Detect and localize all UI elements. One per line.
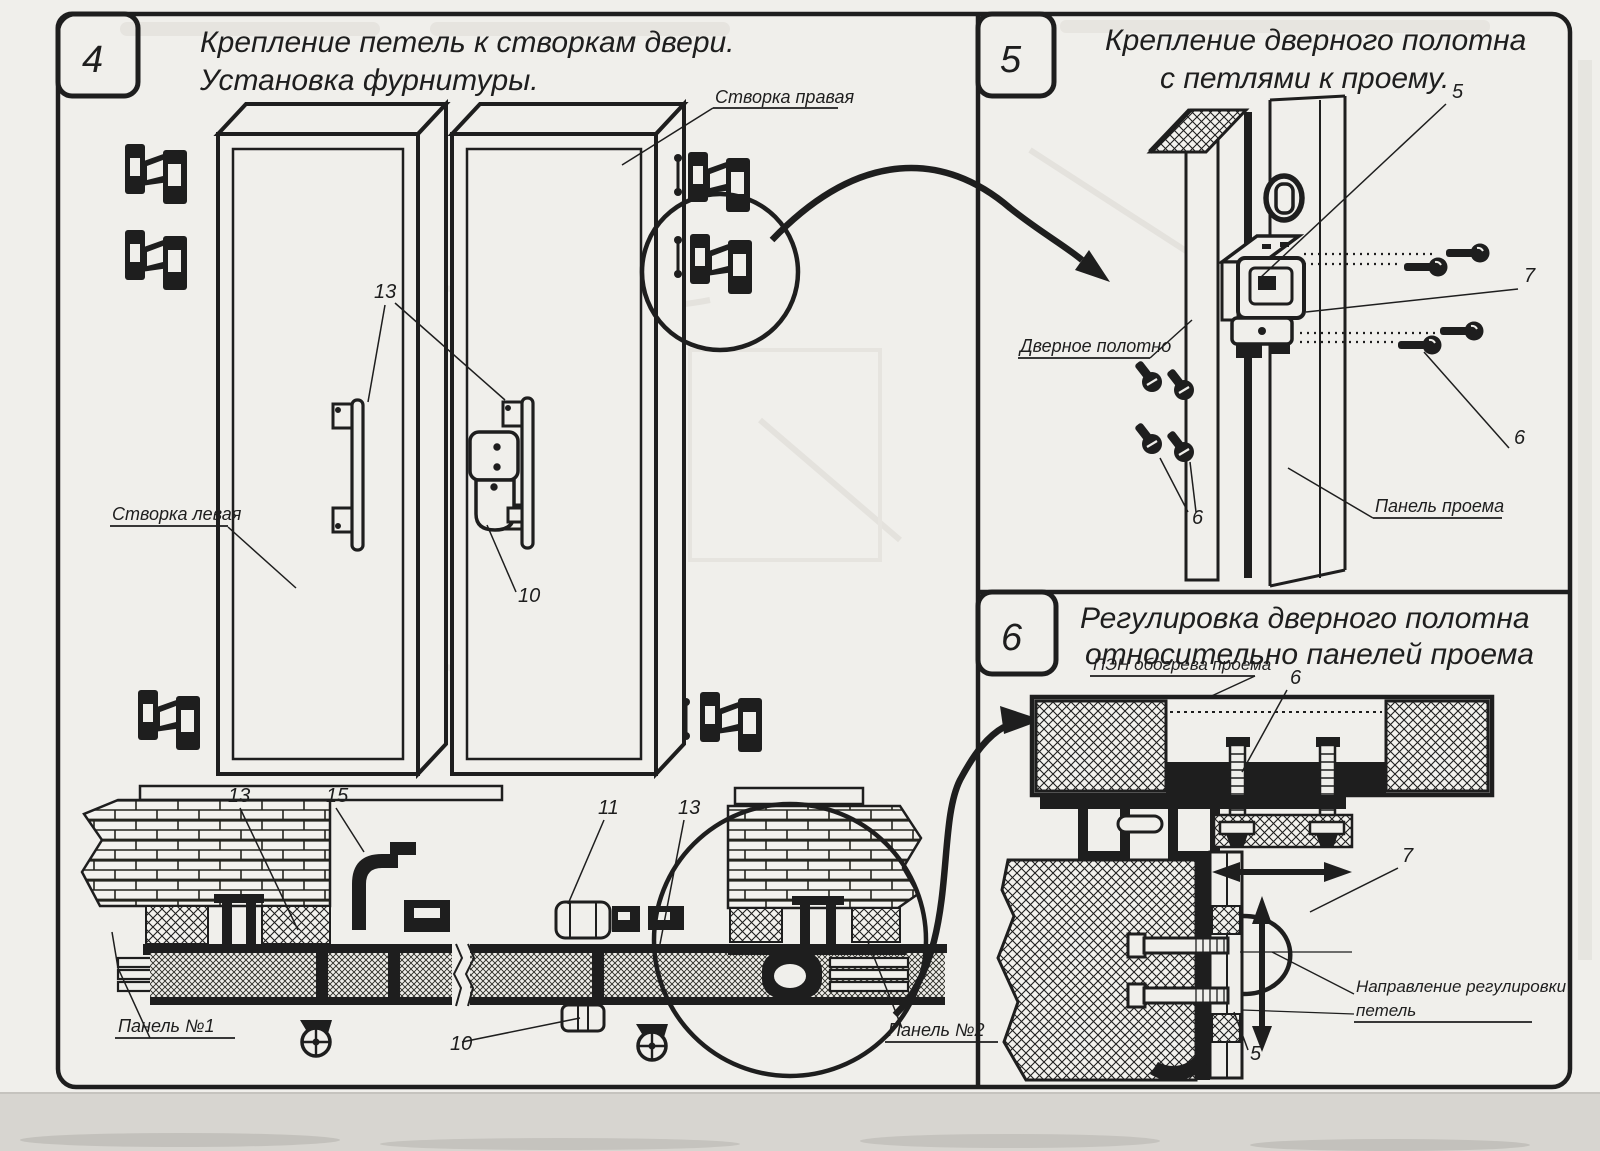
svg-text:13: 13 <box>228 785 250 807</box>
brick-wall-left <box>82 800 330 906</box>
hinge-icon <box>700 692 762 752</box>
svg-text:7: 7 <box>1524 265 1536 287</box>
bottom-lock-fitting <box>562 1005 604 1031</box>
lintel-band <box>1032 697 1492 795</box>
callout-6-right: 6 <box>1424 352 1526 449</box>
callout-7: 7 <box>1306 265 1536 312</box>
adjustment-bolt-horizontal <box>1128 984 1228 1007</box>
assembly-drawing: 4 Крепление петель к створкам двери. Уст… <box>0 0 1600 1151</box>
bolt-icon <box>1404 258 1448 277</box>
panel-5-number: 5 <box>1000 39 1022 81</box>
bolt-icon <box>1440 322 1484 341</box>
vertical-adjust-arrow <box>1252 896 1272 1052</box>
svg-text:Створка правая: Створка правая <box>715 87 854 107</box>
hinge-icon <box>138 690 200 750</box>
panel-6-title-line1: Регулировка дверного полотна <box>1080 602 1530 635</box>
svg-text:13: 13 <box>678 797 700 819</box>
wall-block <box>998 852 1242 1081</box>
horizontal-adjust-arrow <box>1212 862 1352 882</box>
svg-text:5: 5 <box>1452 81 1464 103</box>
svg-text:Направление регулировки: Направление регулировки <box>1356 977 1567 996</box>
svg-text:6: 6 <box>1192 507 1204 529</box>
svg-text:6: 6 <box>1514 427 1526 449</box>
svg-text:11: 11 <box>598 797 619 819</box>
svg-text:петель: петель <box>1356 1001 1416 1020</box>
hinge-icon <box>690 234 752 294</box>
wall-bracket-15 <box>352 842 450 932</box>
svg-text:13: 13 <box>374 281 396 303</box>
svg-text:Панель №2: Панель №2 <box>888 1020 985 1040</box>
svg-text:10: 10 <box>518 585 540 607</box>
hinge-swing-arc <box>1243 916 1290 994</box>
door-lock <box>470 432 522 530</box>
brick-wall-right <box>728 806 921 908</box>
svg-text:5: 5 <box>1250 1043 1262 1065</box>
svg-text:10: 10 <box>450 1033 472 1055</box>
svg-text:Створка левая: Створка левая <box>112 504 242 524</box>
label-heater: ПЭН обогрева проема <box>1090 655 1271 699</box>
svg-text:Панель №1: Панель №1 <box>118 1016 215 1036</box>
hinge-icon <box>125 144 187 204</box>
label-door-leaf: Дверное полотно <box>1018 320 1192 358</box>
svg-text:6: 6 <box>1290 667 1302 689</box>
drawing-sheet: 4 Крепление петель к створкам двери. Уст… <box>0 0 1600 1151</box>
detail-arrow-to-panel5 <box>772 168 1110 282</box>
mounting-bolts <box>1300 244 1490 355</box>
screw-icon <box>1134 422 1162 454</box>
panel-5-title-line2: с петлями к проему. <box>1160 62 1449 95</box>
bolt-icon <box>1398 336 1442 355</box>
panel-4-title-line1: Крепление петель к створкам двери. <box>200 26 735 59</box>
callout-11-profile: 11 <box>568 797 619 904</box>
hinge-assembly <box>1222 236 1304 358</box>
screw-icon <box>1134 360 1162 392</box>
svg-text:Дверное полотно: Дверное полотно <box>1018 336 1171 356</box>
bolt-icon <box>1446 244 1490 263</box>
svg-text:7: 7 <box>1402 845 1414 867</box>
hinge-icon <box>688 152 750 212</box>
panel-5-title-line1: Крепление дверного полотна <box>1105 24 1526 57</box>
panel-5: 5 Крепление дверного полотна с петлями к… <box>978 14 1536 586</box>
svg-text:Панель проема: Панель проема <box>1375 496 1504 516</box>
handle-hole <box>1266 176 1302 220</box>
panel-4-number: 4 <box>82 39 103 81</box>
panel-4: 4 Крепление петель к створкам двери. Уст… <box>58 14 1110 1076</box>
roller-icon <box>636 1024 668 1060</box>
adjustment-bolt-horizontal <box>1128 934 1228 957</box>
panel-4-title-line2: Установка фурнитуры. <box>199 64 539 97</box>
left-door-leaf <box>218 104 446 774</box>
svg-text:ПЭН обогрева проема: ПЭН обогрева проема <box>1093 655 1271 674</box>
hinge-icon <box>125 230 187 290</box>
svg-text:15: 15 <box>326 785 349 807</box>
roller-icon <box>300 1020 332 1056</box>
panel-6: 6 Регулировка дверного полотна относител… <box>978 592 1567 1081</box>
panel-6-number: 6 <box>1001 617 1023 659</box>
